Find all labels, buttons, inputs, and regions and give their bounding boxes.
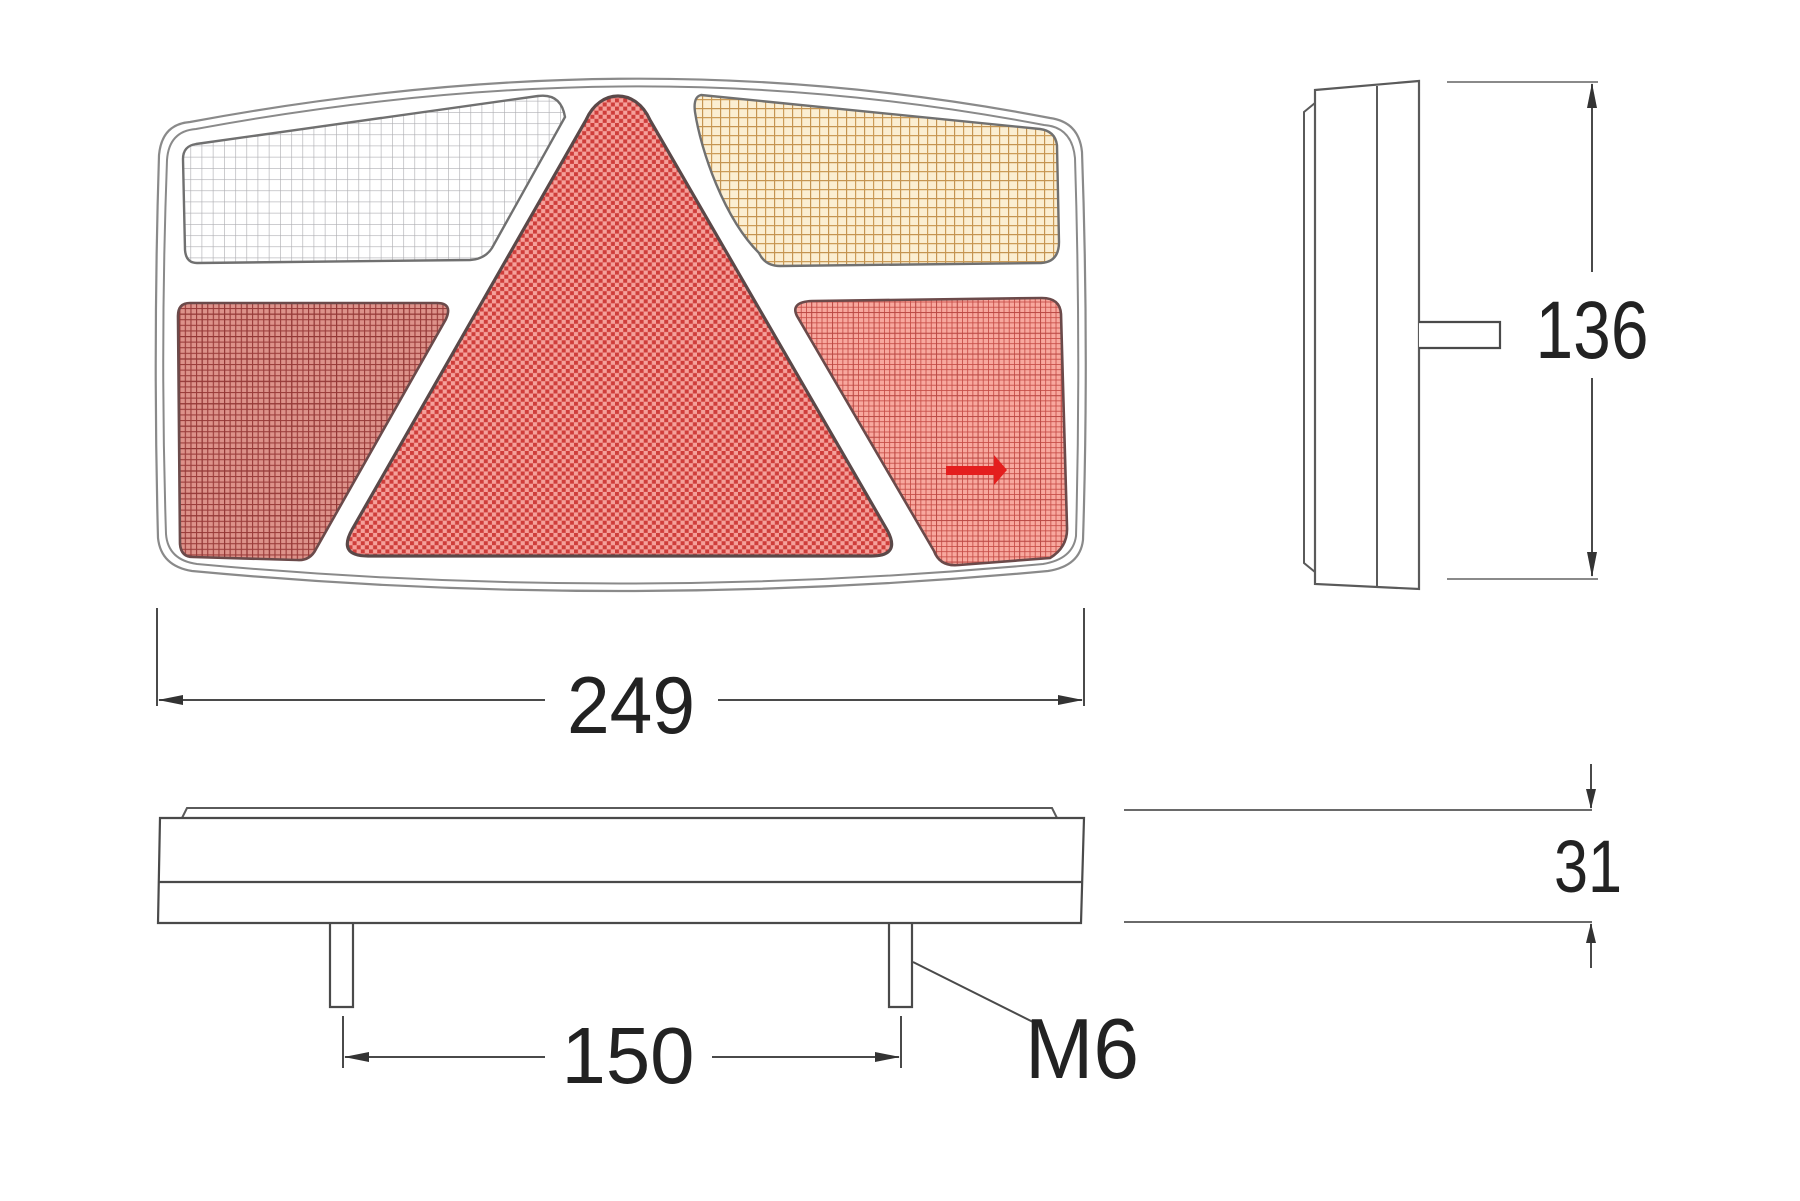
svg-text:136: 136 (1536, 285, 1649, 376)
svg-text:249: 249 (567, 661, 695, 751)
svg-text:150: 150 (562, 1011, 695, 1100)
svg-text:M6: M6 (1025, 1002, 1139, 1097)
svg-text:31: 31 (1554, 825, 1622, 908)
